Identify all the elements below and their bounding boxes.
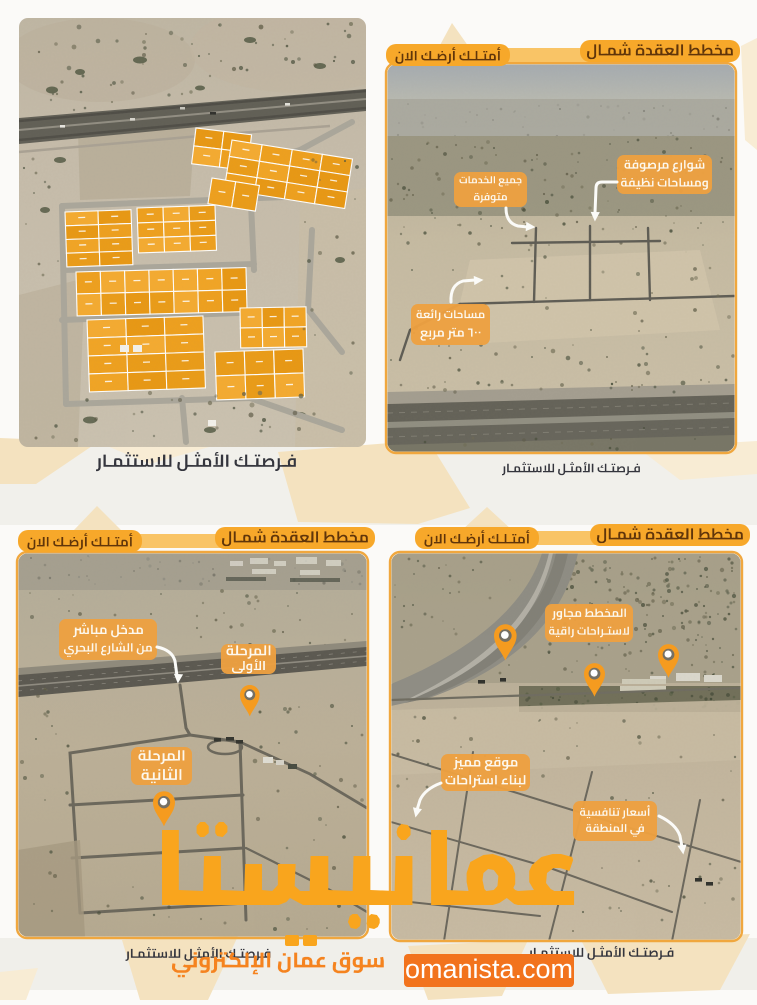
svg-text:omanista.com: omanista.com — [405, 954, 573, 984]
